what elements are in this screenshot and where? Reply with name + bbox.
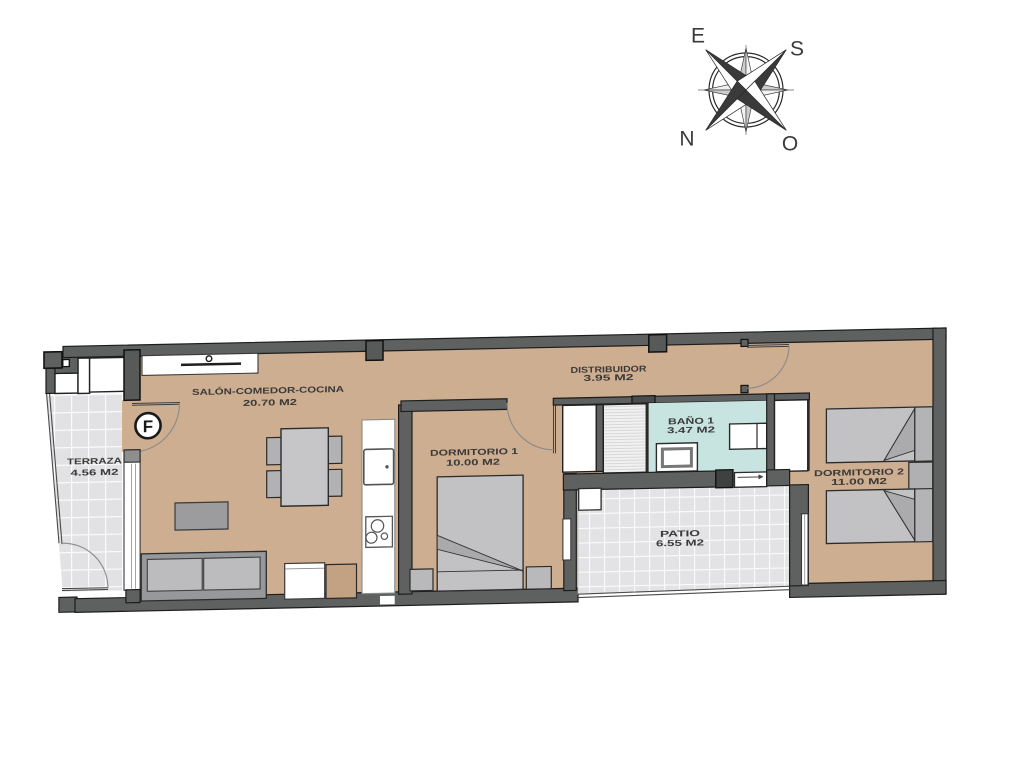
svg-text:TERRAZA: TERRAZA [67, 455, 122, 466]
svg-text:3.95 M2: 3.95 M2 [584, 372, 634, 383]
svg-text:4.56 M2: 4.56 M2 [71, 467, 119, 478]
svg-text:11.00 M2: 11.00 M2 [831, 476, 887, 487]
svg-text:10.00 M2: 10.00 M2 [446, 457, 500, 468]
svg-text:E: E [691, 25, 705, 48]
svg-text:3.47 M2: 3.47 M2 [667, 424, 715, 435]
svg-text:F: F [143, 417, 153, 436]
svg-text:DORMITORIO 1: DORMITORIO 1 [430, 446, 518, 458]
svg-text:S: S [790, 38, 804, 61]
svg-text:20.70 M2: 20.70 M2 [243, 397, 297, 408]
svg-text:6.55 M2: 6.55 M2 [656, 537, 704, 548]
svg-text:O: O [782, 133, 798, 156]
svg-text:N: N [679, 128, 694, 151]
